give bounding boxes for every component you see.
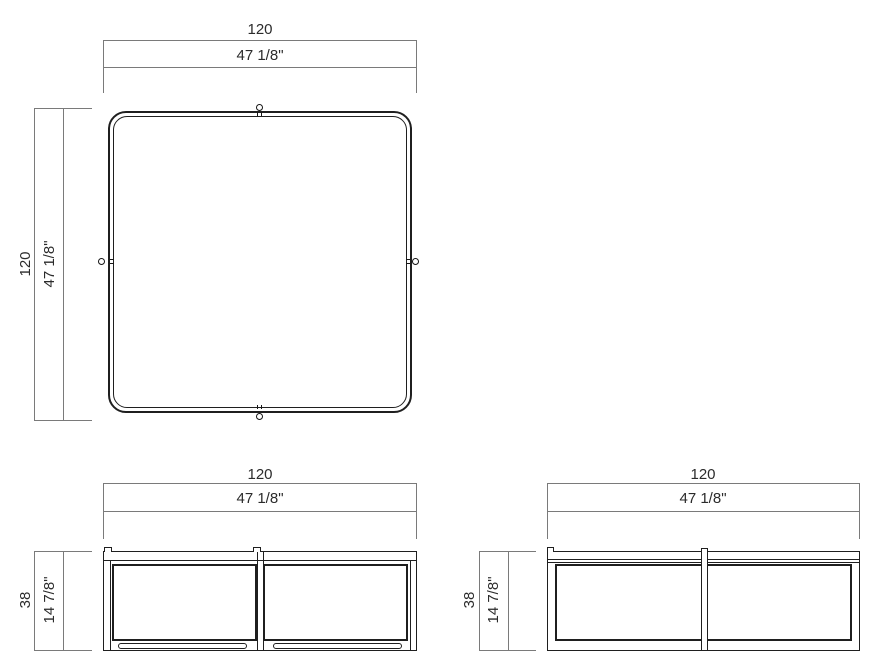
top-view-width-metric-label: 120	[200, 22, 320, 38]
front-view-height-metric-label: 38	[18, 550, 34, 650]
dim-line	[479, 551, 480, 650]
fastener-mark	[406, 263, 410, 264]
fastener-mark	[110, 263, 114, 264]
extension-line	[479, 551, 536, 552]
dim-line	[547, 511, 860, 512]
fastener-mark	[261, 112, 262, 116]
top-view-depth-imperial-label: 47 1/8"	[42, 214, 58, 314]
side-view-width-metric-label: 120	[643, 467, 763, 483]
side-view-width-imperial-label: 47 1/8"	[643, 491, 763, 507]
side-view-height-metric-label: 38	[462, 550, 478, 650]
extension-line	[34, 420, 92, 421]
front-view-height-imperial-label: 14 7/8"	[42, 550, 58, 650]
connector-knob-top	[256, 104, 263, 111]
connector-tab	[253, 547, 261, 552]
left-base-rail	[118, 643, 247, 649]
dim-line	[63, 108, 64, 420]
fastener-mark	[257, 112, 258, 116]
side-view-height-imperial-label: 14 7/8"	[486, 550, 502, 650]
tabletop-inner-line	[113, 116, 407, 408]
top-view-depth-metric-label: 120	[18, 214, 34, 314]
connector-knob-left	[98, 258, 105, 265]
extension-line	[416, 483, 417, 539]
connector-knob-bottom	[256, 413, 263, 420]
connector-knob-right	[412, 258, 419, 265]
top-view-width-imperial-label: 47 1/8"	[200, 48, 320, 64]
right-shelf-panel	[263, 564, 408, 641]
extension-line	[34, 650, 92, 651]
extension-line	[34, 108, 92, 109]
extension-line	[34, 551, 92, 552]
extension-line	[103, 40, 104, 93]
connector-tab	[104, 547, 112, 552]
dim-line	[63, 551, 64, 650]
front-view-width-imperial-label: 47 1/8"	[200, 491, 320, 507]
right-leg-line	[410, 561, 411, 650]
right-base-rail	[273, 643, 402, 649]
fastener-mark	[110, 259, 114, 260]
extension-line	[547, 483, 548, 539]
left-leg-line	[110, 561, 111, 650]
extension-line	[479, 650, 536, 651]
dim-line	[508, 551, 509, 650]
front-view-width-metric-label: 120	[200, 467, 320, 483]
fastener-mark	[257, 405, 258, 409]
fastener-mark	[261, 405, 262, 409]
extension-line	[103, 483, 104, 539]
dim-line	[547, 483, 860, 484]
extension-line	[859, 483, 860, 539]
extension-line	[416, 40, 417, 93]
tabletop-underside-line	[104, 560, 416, 561]
dim-line	[103, 511, 417, 512]
center-leg-line	[257, 552, 258, 650]
left-shelf-panel	[112, 564, 257, 641]
dim-line	[103, 67, 417, 68]
dim-line	[103, 40, 417, 41]
dimension-drawing: 120 47 1/8" 120 47 1/8" 120	[0, 0, 896, 672]
dim-line	[34, 108, 35, 420]
fastener-mark	[406, 259, 410, 260]
dim-line	[103, 483, 417, 484]
dim-line	[34, 551, 35, 650]
center-leg-bar	[701, 548, 708, 650]
connector-tab	[547, 547, 554, 552]
